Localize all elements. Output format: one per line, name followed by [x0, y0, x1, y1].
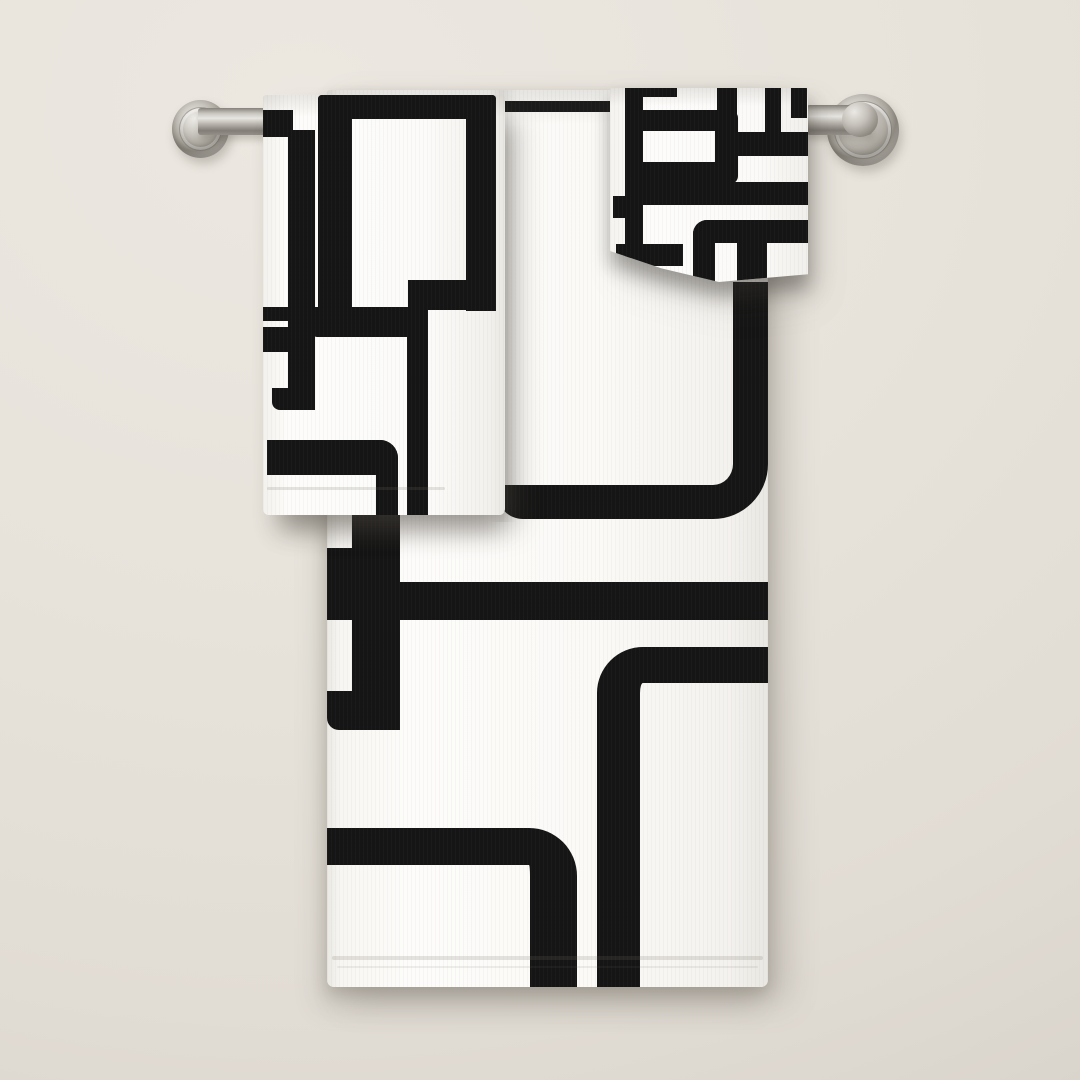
- pattern-left-bar-foot: [327, 691, 355, 730]
- pattern-square-step-high: [408, 280, 496, 310]
- pattern-corner-frame-low: [597, 647, 768, 987]
- pattern-big-square-frame: [318, 95, 496, 311]
- bath-towel-hem-2: [337, 966, 758, 968]
- pattern-edge-stub-b: [263, 327, 288, 352]
- hand-towel-hem: [267, 487, 445, 490]
- pattern-left-bar-stub: [327, 548, 355, 584]
- pattern-left-bar: [352, 514, 400, 730]
- towel-bar-left-arm: [198, 108, 270, 135]
- pattern-low-band-corner: [267, 440, 398, 515]
- pattern-bottomleft-frame: [327, 828, 577, 987]
- pattern-right-corner-frame: [497, 282, 768, 519]
- pattern-left-edge-bar: [288, 130, 315, 410]
- towel-bar-right-arm: [804, 105, 872, 135]
- pattern-square-step-low: [313, 307, 413, 337]
- pattern-low-right-bar: [407, 308, 428, 515]
- bathroom-wall-scene: [0, 0, 1080, 1080]
- pattern-left-bar-foot: [272, 388, 288, 410]
- pattern-top-line: [497, 101, 625, 112]
- pattern-edge-stub-a: [263, 307, 288, 321]
- bath-towel-hem: [332, 956, 763, 960]
- hand-towel: [263, 95, 505, 515]
